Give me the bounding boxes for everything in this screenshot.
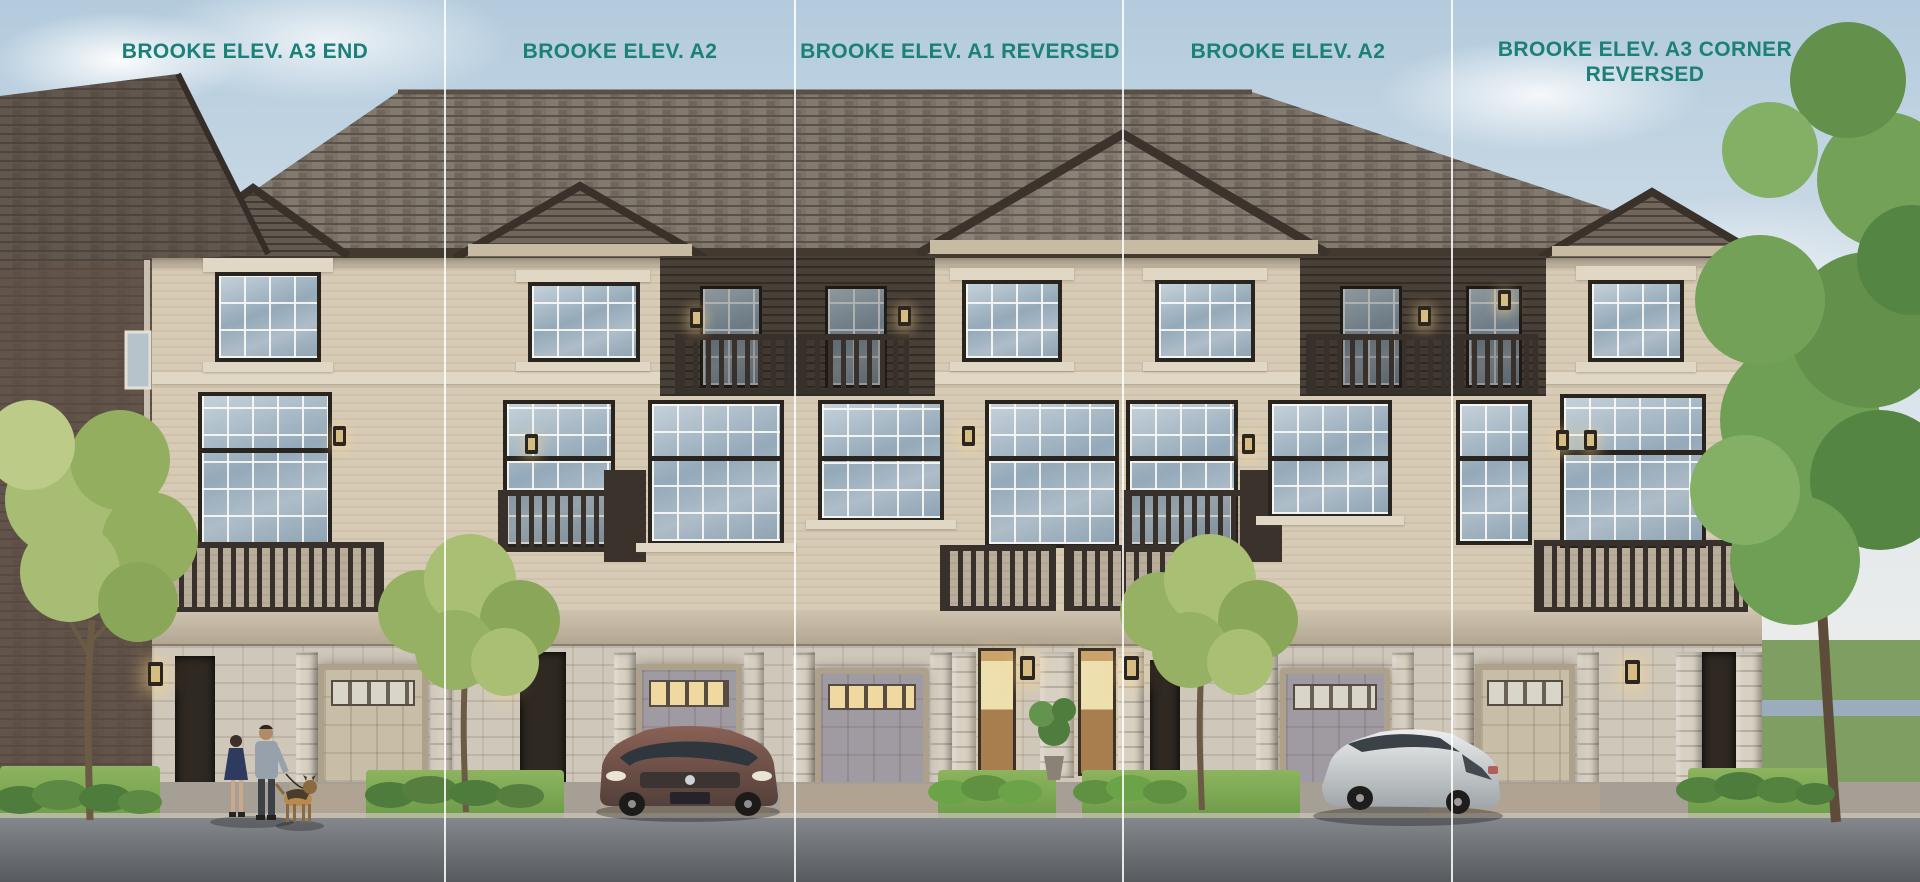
sliding-door	[985, 400, 1119, 548]
window-lintel	[1576, 266, 1696, 280]
balcony-railing	[675, 334, 795, 394]
side-window-slot	[1150, 660, 1180, 778]
window-lintel	[516, 270, 650, 282]
wall-lamp-icon	[1556, 430, 1569, 450]
entry-lantern-icon	[498, 666, 513, 690]
wall-lamp-icon	[1498, 290, 1511, 310]
window-sill	[1576, 362, 1696, 372]
balcony-railing	[148, 542, 384, 612]
stone-pier	[296, 652, 318, 790]
stone-pier	[952, 652, 976, 778]
stone-pier	[1577, 652, 1599, 790]
front-door	[978, 648, 1016, 776]
stone-pier	[614, 652, 636, 790]
juliet-railing	[1122, 490, 1248, 552]
garage-door	[1475, 664, 1575, 788]
window	[962, 280, 1062, 362]
garage-door	[636, 664, 742, 790]
window	[648, 400, 784, 545]
garage-window-row	[1487, 680, 1563, 706]
elevation-label: BROOKE ELEV. A2	[450, 40, 790, 65]
stone-pier	[793, 652, 815, 790]
canopy-band	[152, 612, 1762, 650]
wall-lamp-icon	[333, 426, 346, 446]
window-sill	[950, 362, 1074, 371]
window	[215, 272, 321, 362]
driveway	[780, 784, 950, 816]
window	[1456, 400, 1532, 545]
garage-door	[815, 668, 929, 790]
window-sill	[1256, 516, 1404, 525]
elevation-label: BROOKE ELEV. A2	[1128, 40, 1448, 65]
entry-lantern-icon	[1124, 656, 1139, 680]
stone-pier	[744, 652, 764, 790]
window	[1588, 280, 1684, 362]
wall-lamp-icon	[1584, 430, 1597, 450]
window-lintel	[203, 258, 333, 272]
elevation-label: BROOKE ELEV. A3 CORNER REVERSED	[1460, 38, 1830, 88]
divider-line	[444, 0, 446, 882]
wall-lamp-icon	[1242, 434, 1255, 454]
divider-line	[794, 0, 796, 882]
entry-recess	[175, 656, 215, 790]
window	[528, 282, 640, 362]
patio-doors	[1560, 394, 1706, 548]
wall-lamp-icon	[1418, 306, 1431, 326]
entry-lantern-icon	[148, 662, 163, 686]
window-sill	[806, 520, 956, 529]
window-sill	[516, 362, 650, 371]
wall-lamp-icon	[525, 434, 538, 454]
divider-line	[1122, 0, 1124, 882]
window-sill	[636, 543, 796, 552]
garage-window-row	[828, 684, 916, 710]
garage-window-row	[331, 680, 415, 706]
divider-line	[1451, 0, 1453, 882]
wall-lamp-icon	[898, 306, 911, 326]
wall-lamp-icon	[690, 308, 703, 328]
elevation-label: BROOKE ELEV. A3 END	[40, 40, 450, 65]
window-lintel	[1143, 268, 1267, 280]
window-sill	[203, 362, 333, 372]
window-sill	[1143, 362, 1267, 371]
patio-doors	[198, 392, 332, 548]
balcony-railing	[1306, 334, 1452, 394]
wall-lamp-icon	[962, 426, 975, 446]
entry-lantern-icon	[1020, 656, 1035, 680]
window	[1155, 280, 1255, 362]
entry-lantern-icon	[1625, 660, 1640, 684]
balcony-railing	[1454, 334, 1538, 394]
townhouse-facade	[0, 0, 1920, 882]
entry-balcony-railing	[940, 545, 1056, 611]
window	[818, 400, 944, 522]
window	[1268, 400, 1392, 518]
road	[0, 818, 1920, 882]
window-lintel	[950, 268, 1074, 280]
garage-window-row	[1293, 684, 1377, 710]
stone-pier	[1040, 652, 1074, 778]
garage-window-row	[649, 680, 730, 707]
balcony-railing	[1534, 540, 1748, 612]
stone-pier	[1452, 652, 1474, 790]
elevation-label: BROOKE ELEV. A1 REVERSED	[800, 40, 1120, 65]
balcony-railing	[797, 334, 909, 394]
stone-pier	[1392, 652, 1414, 790]
driveway	[1430, 784, 1600, 816]
rendering-canvas: BROOKE ELEV. A3 END BROOKE ELEV. A2 BROO…	[0, 0, 1920, 882]
driveway	[600, 784, 770, 816]
front-door	[1078, 648, 1116, 776]
